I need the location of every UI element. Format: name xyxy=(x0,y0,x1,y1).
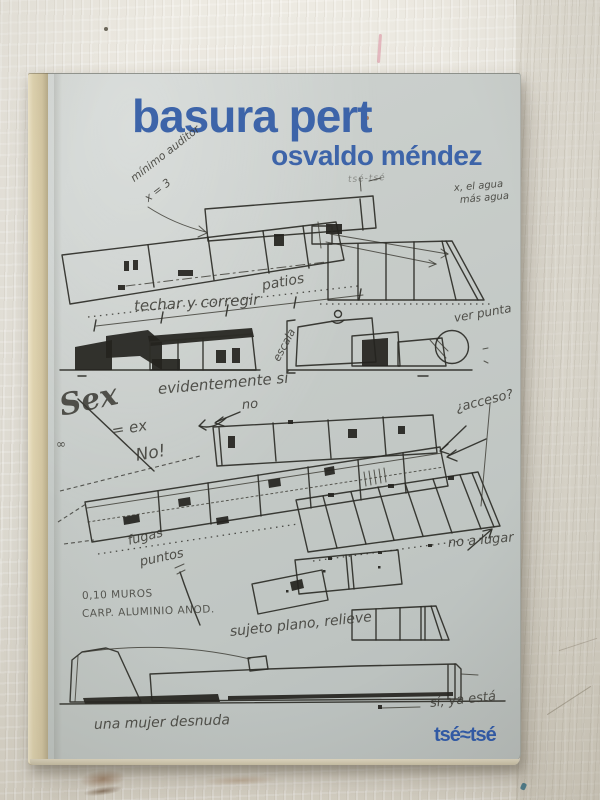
photo-of-book-on-wood-table: basura pert osvaldo méndez tsé≈tsé mínim… xyxy=(0,0,600,800)
photo-vignette xyxy=(0,0,600,800)
